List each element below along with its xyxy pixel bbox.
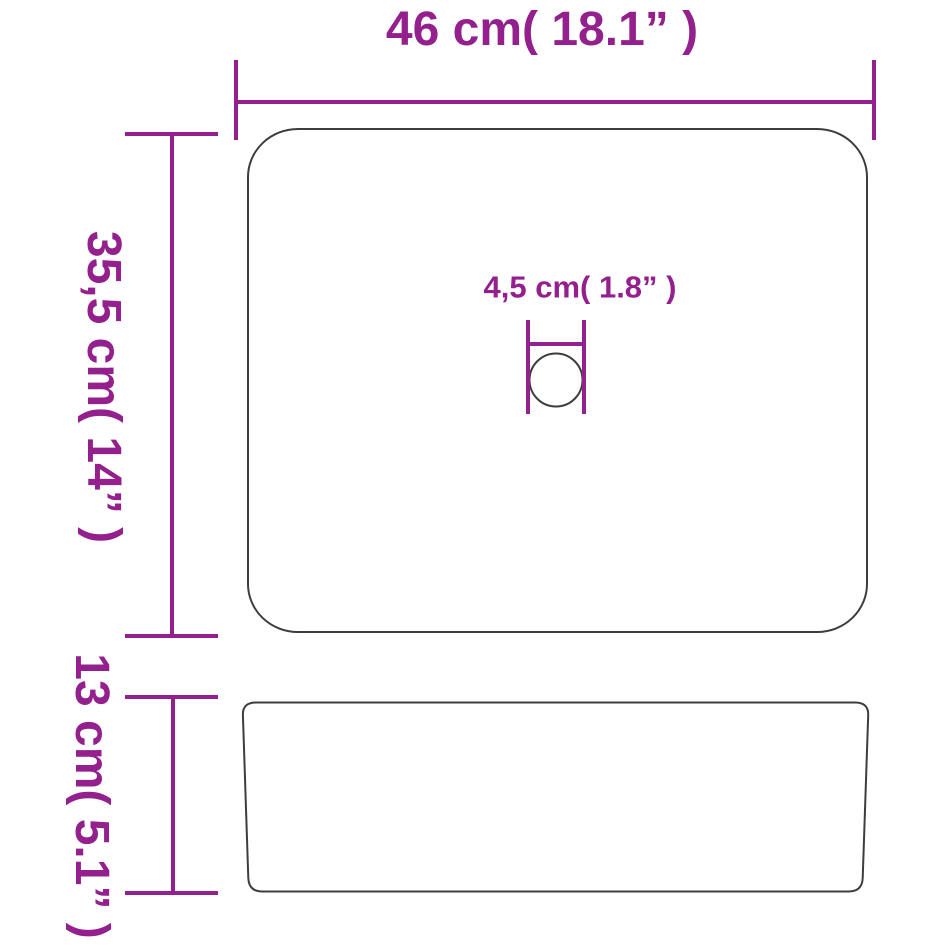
drain-hole-circle bbox=[530, 354, 583, 407]
width-dimension-end-tick-left bbox=[234, 60, 238, 140]
dimension-diagram: 46 cm( 18.1” ) 35,5 cm( 14” ) 4,5 cm( 1.… bbox=[0, 0, 947, 947]
width-dimension-label: 46 cm( 18.1” ) bbox=[386, 6, 698, 54]
depth-dimension-line bbox=[170, 134, 174, 636]
depth-dimension-label: 35,5 cm( 14” ) bbox=[79, 231, 127, 543]
width-dimension-end-tick-right bbox=[872, 60, 876, 140]
drain-dimension-line bbox=[526, 342, 586, 346]
basin-top-view-outline bbox=[248, 129, 867, 632]
drain-dimension-tick-left bbox=[526, 320, 530, 414]
product-outline-drawing bbox=[0, 0, 947, 947]
height-dimension-line bbox=[171, 697, 175, 893]
width-dimension-line bbox=[234, 100, 876, 104]
depth-dimension-end-tick-top bbox=[125, 132, 218, 136]
basin-side-view-outline bbox=[243, 703, 868, 892]
height-dimension-end-tick-top bbox=[125, 695, 218, 699]
height-dimension-label: 13 cm( 5.1” ) bbox=[67, 653, 115, 938]
height-dimension-end-tick-bottom bbox=[125, 891, 218, 895]
drain-dimension-label: 4,5 cm( 1.8” ) bbox=[484, 272, 677, 303]
drain-dimension-tick-right bbox=[582, 320, 586, 414]
depth-dimension-end-tick-bottom bbox=[125, 634, 218, 638]
